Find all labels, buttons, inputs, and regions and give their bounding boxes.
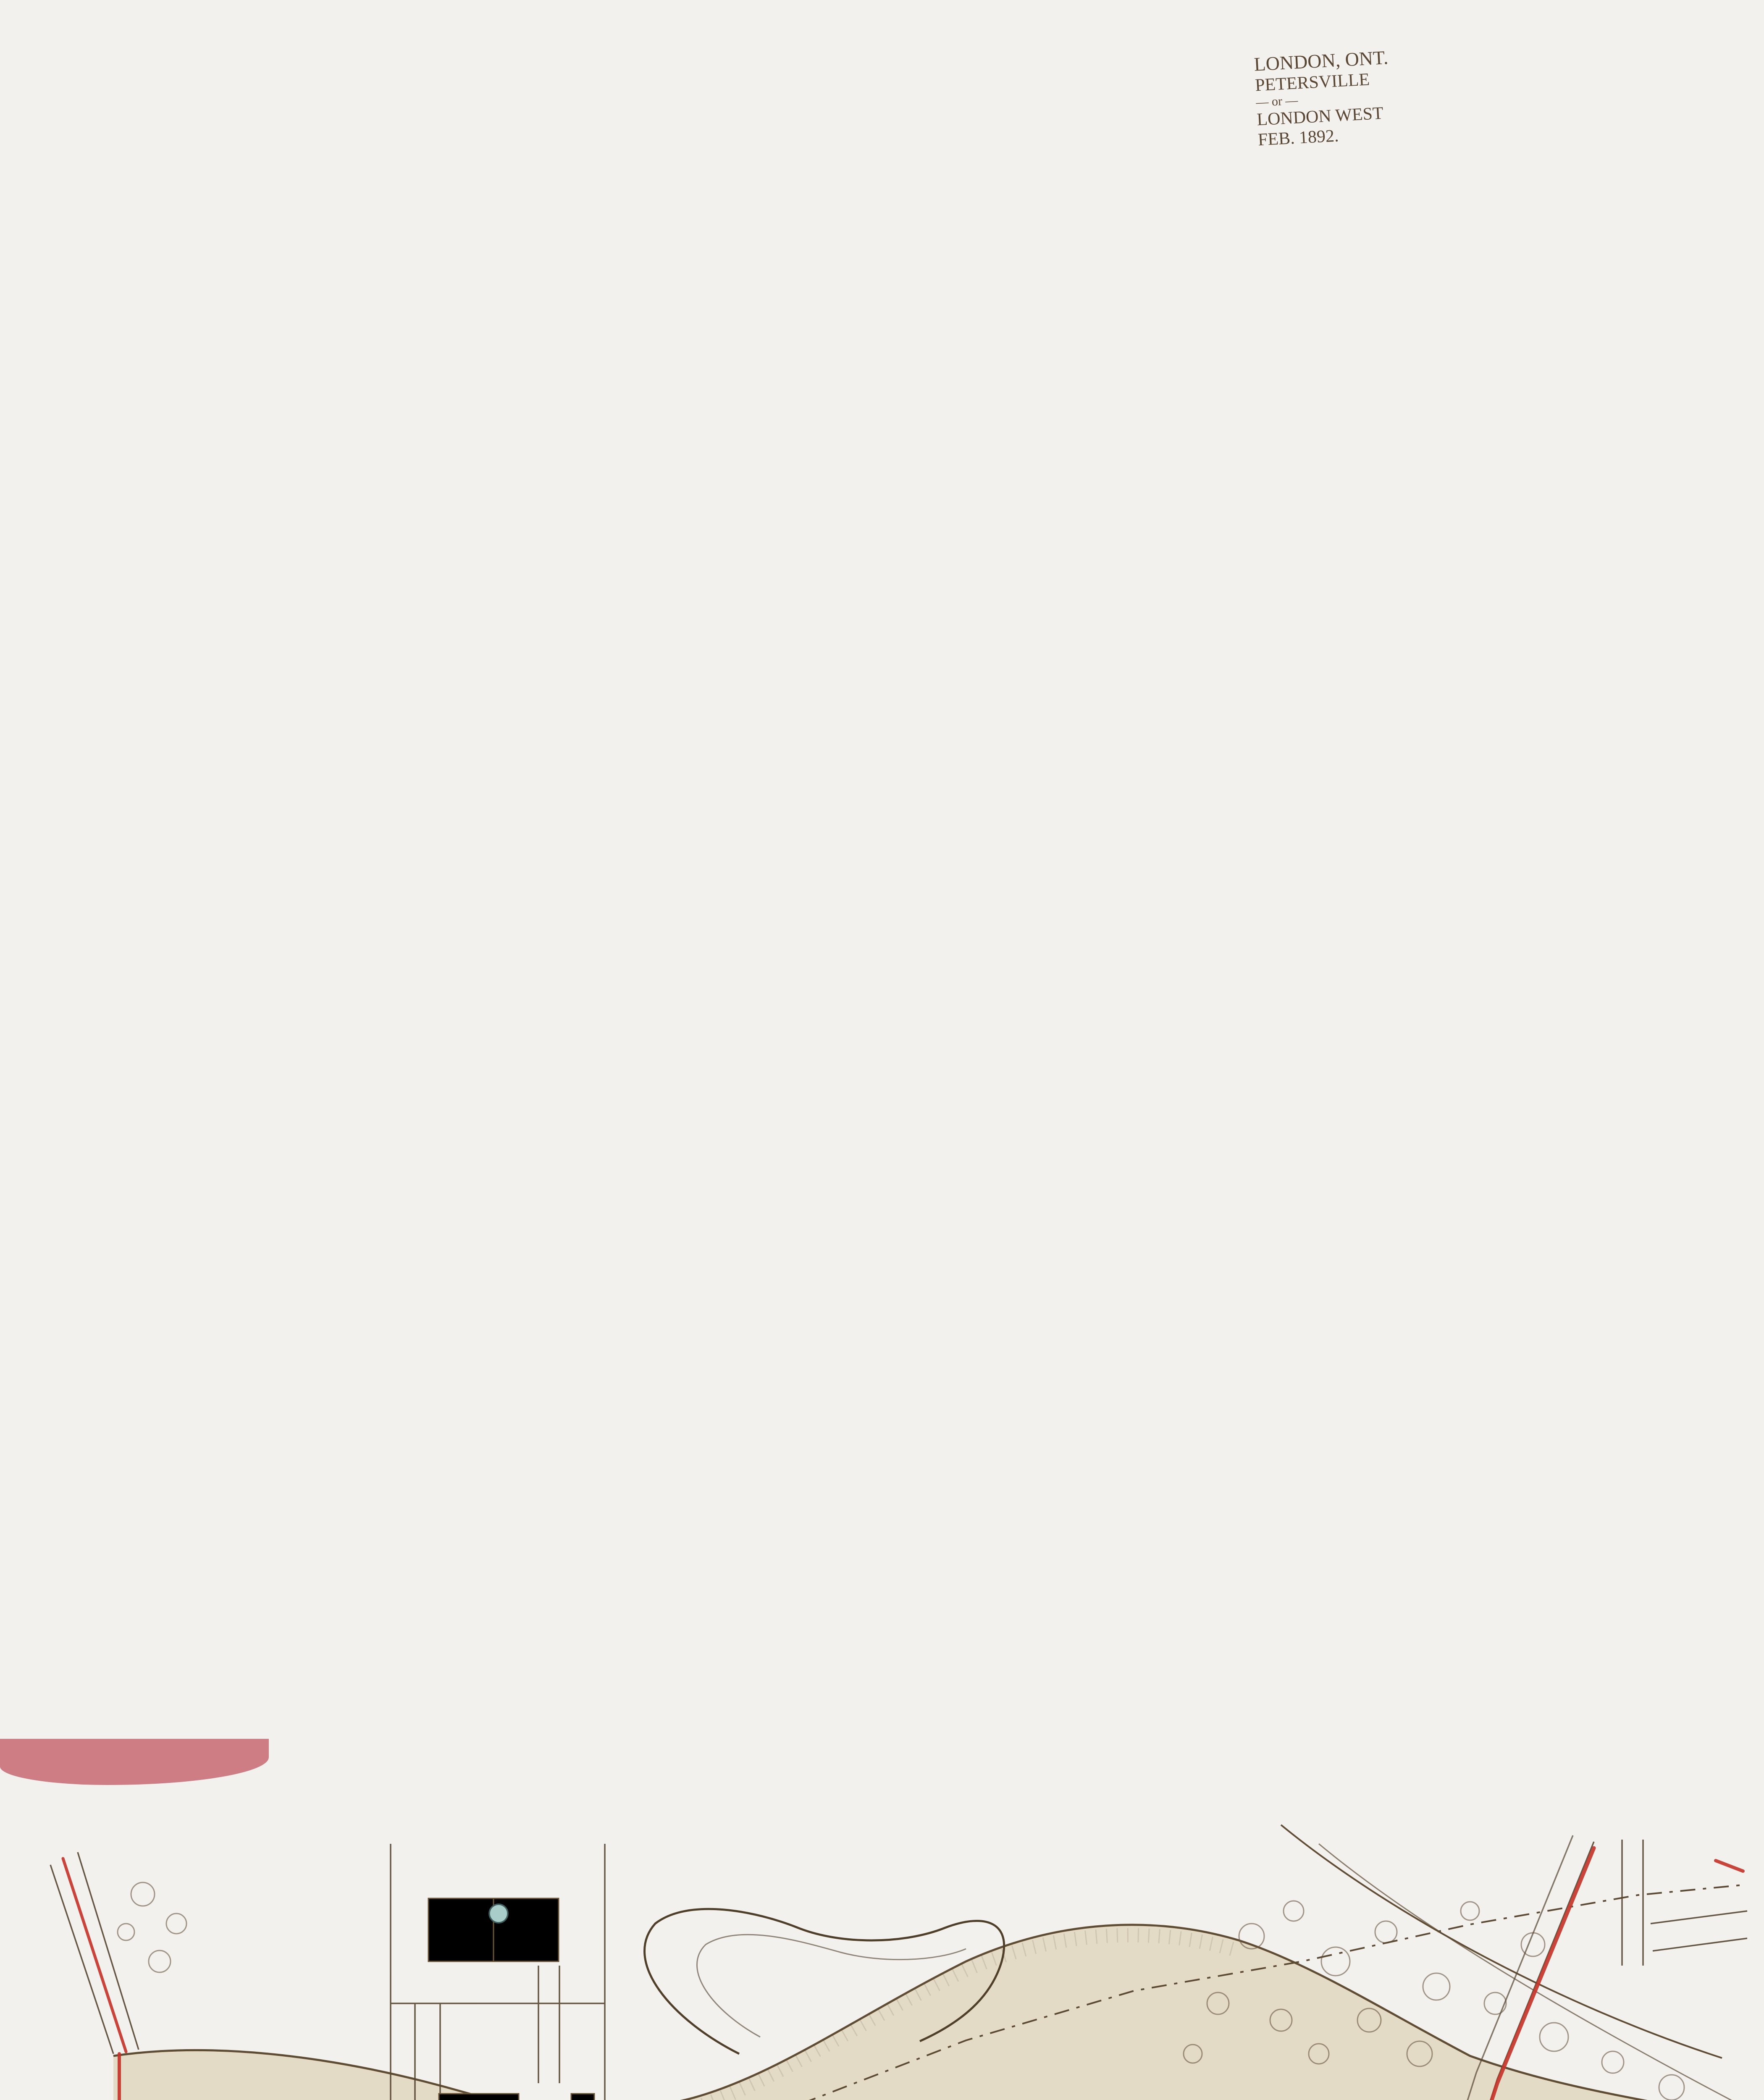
map-sheet-paper: 38 38 SEE SHEET № 7 SEE SHEET № 29. SEE … — [0, 0, 1764, 2100]
paper-patch — [0, 732, 443, 848]
map-title-box: LONDON, ONT. PETERSVILLE — or — LONDON W… — [1253, 44, 1443, 150]
map-linework — [0, 1785, 1764, 2100]
red-stain — [0, 1739, 269, 1785]
paper-patch — [0, 1158, 275, 1353]
paper-patch — [0, 246, 359, 527]
paper-patch — [0, 1330, 286, 1535]
river-water — [113, 1925, 1743, 2100]
photographed-fire-insurance-map: 38 38 SEE SHEET № 7 SEE SHEET № 29. SEE … — [0, 0, 1764, 2100]
